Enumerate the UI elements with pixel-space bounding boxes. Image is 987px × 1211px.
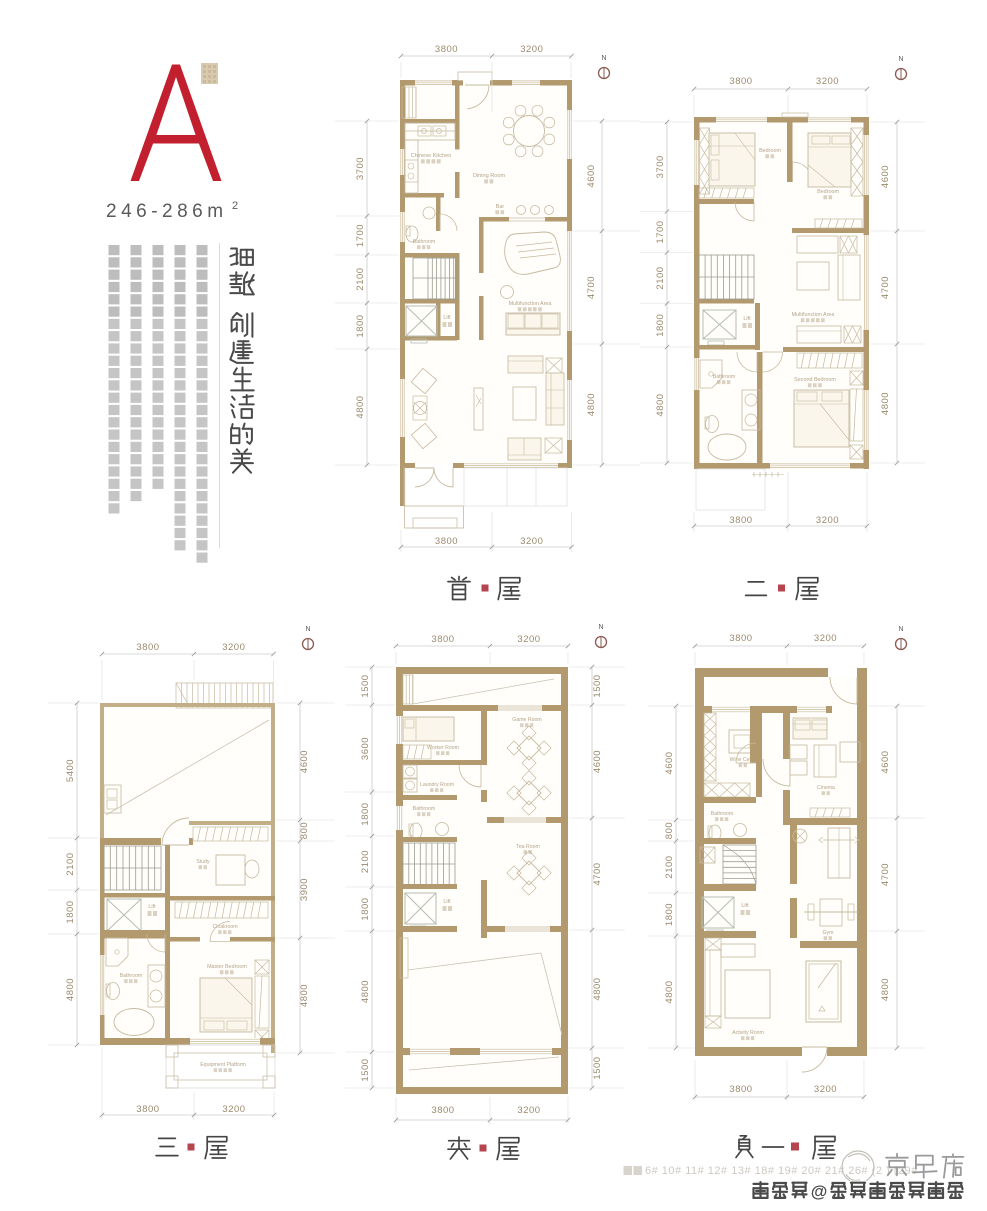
svg-text:3900: 3900	[299, 878, 310, 901]
svg-text:Multifunction Area: Multifunction Area	[792, 312, 835, 318]
svg-text:246-286m: 246-286m	[106, 201, 228, 222]
svg-text:Cinema: Cinema	[817, 785, 835, 791]
svg-text:5400: 5400	[65, 759, 76, 782]
svg-text:1500: 1500	[360, 674, 371, 697]
svg-text:4800: 4800	[592, 977, 603, 1000]
svg-text:N: N	[601, 55, 606, 62]
svg-text:3700: 3700	[355, 157, 366, 180]
svg-text:4800: 4800	[299, 984, 310, 1007]
svg-text:Bathroom: Bathroom	[413, 806, 436, 812]
svg-text:Lift: Lift	[443, 315, 451, 321]
svg-text:3200: 3200	[816, 76, 839, 87]
svg-text:1500: 1500	[592, 1056, 603, 1079]
svg-text:Lift: Lift	[148, 904, 156, 910]
svg-text:Tea Room: Tea Room	[516, 844, 540, 850]
svg-text:800: 800	[299, 822, 310, 839]
svg-text:N: N	[305, 626, 310, 633]
svg-text:Bathroom: Bathroom	[120, 973, 143, 979]
svg-text:4700: 4700	[592, 862, 603, 885]
svg-text:1800: 1800	[655, 314, 666, 337]
svg-text:1700: 1700	[655, 220, 666, 243]
svg-text:Second Bedroom: Second Bedroom	[794, 377, 836, 383]
svg-text:1800: 1800	[360, 802, 371, 825]
svg-text:3800: 3800	[136, 1104, 159, 1115]
svg-text:3800: 3800	[435, 536, 458, 547]
svg-text:3800: 3800	[729, 76, 752, 87]
svg-text:2100: 2100	[65, 852, 76, 875]
svg-text:3700: 3700	[655, 155, 666, 178]
svg-text:2100: 2100	[360, 850, 371, 873]
svg-text:4800: 4800	[664, 980, 675, 1003]
svg-text:1700: 1700	[355, 224, 366, 247]
svg-text:Bedroom: Bedroom	[759, 148, 781, 154]
svg-text:Lift: Lift	[743, 316, 751, 322]
svg-text:4700: 4700	[586, 276, 597, 299]
svg-text:Gym: Gym	[823, 930, 834, 936]
svg-text:3800: 3800	[729, 1084, 752, 1095]
svg-text:4800: 4800	[655, 393, 666, 416]
svg-text:Game Room: Game Room	[512, 717, 541, 723]
svg-text:3200: 3200	[517, 1105, 540, 1116]
svg-text:3800: 3800	[431, 1105, 454, 1116]
svg-text:800: 800	[664, 822, 675, 839]
svg-text:3800: 3800	[729, 633, 752, 644]
svg-text:Activity Room: Activity Room	[732, 1030, 764, 1036]
svg-text:Worker Room: Worker Room	[427, 745, 459, 751]
svg-text:4600: 4600	[880, 165, 891, 188]
svg-text:4600: 4600	[299, 750, 310, 773]
svg-text:3200: 3200	[520, 536, 543, 547]
svg-text:3800: 3800	[729, 515, 752, 526]
svg-text:4800: 4800	[355, 395, 366, 418]
svg-text:4700: 4700	[880, 863, 891, 886]
svg-text:6# 10# 11# 12# 13# 18# 1: 6# 10# 11# 12# 13# 18# 19# 20# 21# 26# (…	[645, 1165, 918, 1177]
svg-text:Bedroom: Bedroom	[817, 189, 839, 195]
svg-text:3800: 3800	[431, 634, 454, 645]
svg-text:N: N	[598, 624, 603, 631]
svg-text:Bathroom: Bathroom	[413, 239, 436, 245]
svg-text:1800: 1800	[664, 903, 675, 926]
svg-text:Equipment Platform: Equipment Platform	[200, 1062, 246, 1068]
svg-text:2100: 2100	[655, 266, 666, 289]
svg-text:Chinese Kitchen: Chinese Kitchen	[411, 153, 452, 159]
svg-text:Laundry Room: Laundry Room	[420, 782, 454, 788]
svg-text:4600: 4600	[664, 751, 675, 774]
svg-text:N: N	[898, 56, 903, 63]
svg-text:4800: 4800	[586, 393, 597, 416]
svg-text:N: N	[898, 626, 903, 633]
svg-text:4600: 4600	[880, 750, 891, 773]
svg-text:Bar: Bar	[496, 204, 505, 210]
svg-text:Lift: Lift	[443, 899, 451, 905]
svg-text:Bathroom: Bathroom	[711, 811, 734, 817]
svg-text:Dining Room: Dining Room	[473, 173, 506, 179]
svg-text:3200: 3200	[517, 634, 540, 645]
svg-text:3800: 3800	[435, 44, 458, 55]
svg-text:4800: 4800	[360, 980, 371, 1003]
svg-text:3600: 3600	[360, 737, 371, 760]
svg-text:Study: Study	[196, 859, 210, 865]
svg-text:4700: 4700	[880, 276, 891, 299]
svg-text:@: @	[811, 1182, 828, 1201]
svg-text:4600: 4600	[586, 164, 597, 187]
svg-text:3200: 3200	[222, 642, 245, 653]
svg-text:1800: 1800	[355, 314, 366, 337]
svg-text:2100: 2100	[664, 855, 675, 878]
svg-text:4600: 4600	[592, 750, 603, 773]
svg-text:1800: 1800	[65, 900, 76, 923]
svg-text:3200: 3200	[814, 1084, 837, 1095]
svg-text:3200: 3200	[814, 633, 837, 644]
svg-text:3200: 3200	[222, 1104, 245, 1115]
svg-text:2: 2	[232, 200, 238, 212]
svg-text:1500: 1500	[360, 1058, 371, 1081]
svg-text:1500: 1500	[592, 674, 603, 697]
svg-text:Master Bedroom: Master Bedroom	[207, 964, 247, 970]
svg-text:1800: 1800	[360, 897, 371, 920]
svg-text:4800: 4800	[880, 978, 891, 1001]
svg-text:3800: 3800	[136, 642, 159, 653]
svg-text:4800: 4800	[880, 392, 891, 415]
svg-text:2100: 2100	[355, 267, 366, 290]
svg-text:Multifunction Area: Multifunction Area	[509, 301, 552, 307]
svg-text:3200: 3200	[520, 44, 543, 55]
svg-text:3200: 3200	[816, 515, 839, 526]
svg-text:Lift: Lift	[741, 903, 749, 909]
svg-text:Bathroom: Bathroom	[713, 374, 736, 380]
svg-text:4800: 4800	[65, 978, 76, 1001]
